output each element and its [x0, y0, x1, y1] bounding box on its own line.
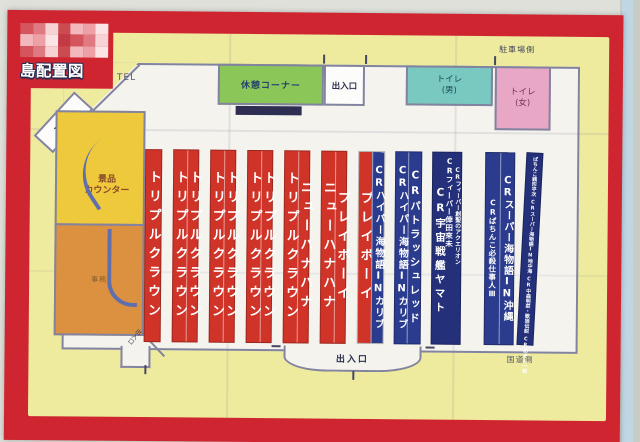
- censor-pixel: [58, 35, 71, 46]
- machine-label: CR中森明菜・歌姫伝説: [523, 276, 531, 333]
- rest-corner: 休憩コーナー: [218, 64, 324, 106]
- machine-label: CRフィーバー倖田來未: [445, 157, 453, 248]
- entrance-bottom-label: 出入口: [336, 351, 369, 364]
- island-column: CRパトラッシュレッド: [407, 152, 422, 343]
- wall-notch: [120, 346, 150, 368]
- machine-label: CRハイパー海物語INカリブ: [396, 165, 407, 330]
- censor-pixel: [96, 35, 109, 46]
- machine-island-4: トリプルクラウントリプルクラウン: [246, 150, 274, 343]
- machine-label: ニューハナハナ: [321, 181, 335, 314]
- entrance-top: 出入口: [324, 65, 365, 106]
- tick-mark: [272, 345, 281, 347]
- censor-pixel: [45, 46, 58, 57]
- glass-reflection: [622, 0, 633, 442]
- island-column: トリプルクラウン: [223, 151, 239, 342]
- machine-label: プレイボーイ: [358, 190, 372, 304]
- censor-pixel: [20, 46, 33, 57]
- machine-label: CR宇宙戦艦ヤマト: [434, 187, 446, 316]
- photo-background: 出入口 TEL 休憩コーナー 出入口 トイレ (男) トイレ (女): [0, 0, 640, 442]
- machine-label: CRぱちんこ必殺仕事人Ⅲ: [488, 198, 496, 299]
- entrance-top-label: 出入口: [332, 79, 358, 91]
- toilet-women: トイレ (女): [494, 66, 551, 130]
- tick-mark: [323, 55, 325, 64]
- censor-pixel: [20, 34, 33, 45]
- machine-label: トリプルクラウン: [224, 170, 238, 322]
- censored-logo: [20, 23, 108, 58]
- machine-island-10: CRぱちんこ必殺仕事人ⅢCRスーパー海物語IN沖縄: [484, 152, 516, 345]
- censor-pixel: [45, 23, 58, 34]
- censor-pixel: [71, 23, 84, 34]
- censor-pixel: [83, 35, 96, 46]
- machine-label: トリプルクラウン: [284, 171, 298, 323]
- tel-label: TEL: [117, 73, 136, 83]
- censor-pixel: [96, 24, 109, 35]
- floor-map-poster: 出入口 TEL 休憩コーナー 出入口 トイレ (男) トイレ (女): [4, 10, 624, 442]
- machine-label: プレイボーイ: [335, 190, 349, 304]
- censor-pixel: [83, 24, 96, 35]
- island-column: トリプルクラウン: [260, 151, 276, 342]
- store-logo-block: 島配置図: [17, 20, 114, 89]
- toilet-men: トイレ (男): [406, 65, 493, 106]
- counter-bench-bar: [236, 106, 302, 116]
- censor-pixel: [33, 34, 46, 45]
- censor-pixel: [96, 46, 109, 57]
- machine-label: CRスーパー海物語IN沖縄: [501, 175, 512, 322]
- rest-corner-label: 休憩コーナー: [241, 78, 301, 92]
- machine-island-3: トリプルクラウントリプルクラウン: [209, 150, 237, 343]
- machine-label: トリプルクラウン: [247, 170, 261, 322]
- machine-label: ニューハナハナ: [298, 180, 312, 313]
- tick-mark: [365, 55, 367, 64]
- machine-label: CRパトラッシュレッド: [409, 169, 421, 326]
- censor-pixel: [20, 23, 33, 34]
- censor-pixel: [70, 46, 83, 57]
- entrance-bottom: 出入口: [283, 345, 421, 372]
- machine-label: CRフィーバー創聖のアクエリオン: [453, 167, 460, 265]
- tick-mark: [144, 365, 146, 374]
- machine-island-8: CRハイパー海物語INカリブCRパトラッシュレッド: [394, 151, 423, 344]
- page-title: 島配置図: [20, 59, 110, 82]
- machine-island-7: プレイボーイCRハイパー海物語INカリブ: [357, 151, 386, 344]
- machine-label: トリプルクラウン: [187, 170, 201, 322]
- machine-islands-layer: トリプルクラウントリプルクラウントリプルクラウントリプルクラウントリプルクラウン…: [31, 32, 609, 37]
- map-paper: 出入口 TEL 休憩コーナー 出入口 トイレ (男) トイレ (女): [28, 32, 609, 421]
- censor-pixel: [58, 46, 71, 57]
- machine-label: トリプルクラウン: [210, 170, 224, 322]
- censor-pixel: [33, 23, 46, 34]
- censor-pixel: [58, 23, 71, 34]
- tick-mark: [426, 347, 435, 349]
- machine-island-5: トリプルクラウンニューハナハナ: [283, 150, 311, 343]
- machine-label: トリプルクラウン: [261, 171, 275, 323]
- machine-island-1: トリプルクラウン: [144, 149, 163, 342]
- road-side-label: 国道側: [506, 354, 533, 365]
- island-column: トリプルクラウン: [186, 150, 202, 341]
- tick-mark: [352, 371, 354, 380]
- office-label: 事務: [91, 275, 107, 285]
- island-column: CRスーパー海物語IN沖縄: [498, 153, 514, 344]
- machine-label: CRハイパー海物語INカリブ: [372, 165, 383, 330]
- toilet-women-label: トイレ (女): [510, 88, 536, 109]
- toilet-men-label: トイレ (男): [437, 75, 463, 96]
- machine-label: CRめぞん一刻: [521, 336, 528, 373]
- censor-pixel: [45, 35, 58, 46]
- machine-label: CRスーパー海物語IN地中海: [526, 199, 535, 273]
- machine-label: トリプルクラウン: [173, 170, 187, 322]
- machine-island-6: ニューハナハナプレイボーイ: [320, 151, 348, 344]
- machine-label: トリプルクラウン: [146, 170, 160, 322]
- censor-pixel: [83, 46, 96, 57]
- censor-pixel: [33, 46, 46, 57]
- machine-label: ぱちんこ銭形平次: [530, 156, 537, 196]
- queue-rail-line: [107, 229, 138, 307]
- island-column: トリプルクラウン: [145, 150, 162, 341]
- censor-pixel: [70, 35, 83, 46]
- island-column: ニューハナハナ: [297, 151, 313, 342]
- tick-mark: [494, 56, 496, 65]
- machine-island-9: CR宇宙戦艦ヤマトCRフィーバー倖田來未CRフィーバー創聖のアクエリオン: [431, 152, 463, 345]
- island-column: CRハイパー海物語INカリブ: [371, 152, 385, 343]
- machine-island-2: トリプルクラウントリプルクラウン: [172, 149, 200, 342]
- island-column: プレイボーイ: [334, 152, 350, 343]
- parking-side-label: 駐車場側: [499, 44, 535, 55]
